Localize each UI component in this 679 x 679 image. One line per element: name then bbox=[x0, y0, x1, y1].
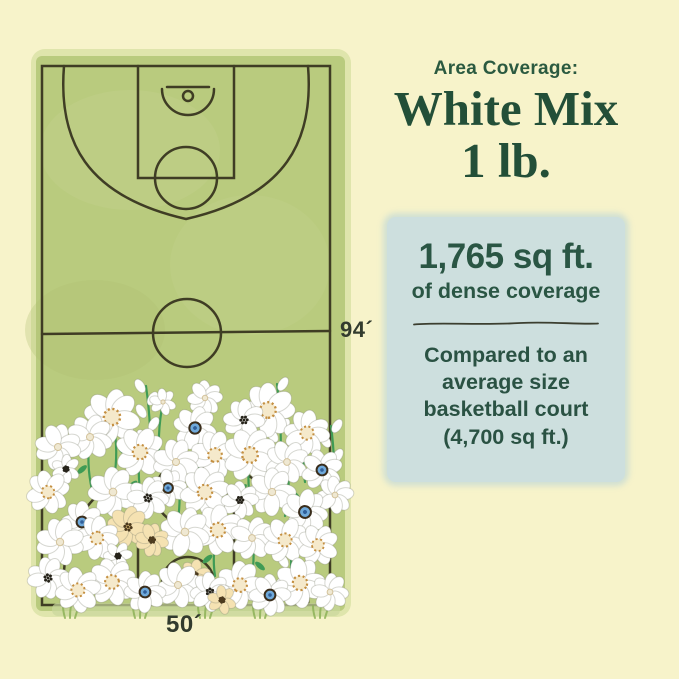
coverage-area-value: 1,765 sq ft. bbox=[387, 239, 625, 276]
flower-center-plain bbox=[202, 395, 207, 400]
petal bbox=[264, 493, 280, 516]
area-coverage-kicker: Area Coverage: bbox=[375, 58, 637, 80]
comparison-line: average size bbox=[387, 369, 625, 396]
coverage-card: 1,765 sq ft. of dense coverage Compared … bbox=[387, 217, 625, 482]
title-line-1: White Mix bbox=[375, 83, 637, 135]
hand-drawn-divider bbox=[410, 319, 602, 329]
infographic: 94´ 50´ Area Coverage: White Mix 1 lb. 1… bbox=[0, 0, 679, 679]
comparison-line: basketball court bbox=[387, 396, 625, 423]
court-width-label: 50´ bbox=[166, 611, 202, 639]
comparison-text: Compared to an average size basketball c… bbox=[387, 342, 625, 451]
info-panel: Area Coverage: White Mix 1 lb. bbox=[375, 58, 637, 188]
comparison-line: (4,700 sq ft.) bbox=[387, 424, 625, 451]
product-title: White Mix 1 lb. bbox=[375, 83, 637, 188]
grass-blade bbox=[70, 606, 71, 618]
coverage-area-caption: of dense coverage bbox=[387, 279, 625, 304]
court-length-label: 94´ bbox=[340, 317, 373, 343]
title-line-2: 1 lb. bbox=[375, 135, 637, 187]
wash-mottle bbox=[25, 280, 165, 380]
wash-mottle bbox=[40, 90, 220, 210]
comparison-line: Compared to an bbox=[387, 342, 625, 369]
flower-center-plain bbox=[332, 492, 338, 498]
